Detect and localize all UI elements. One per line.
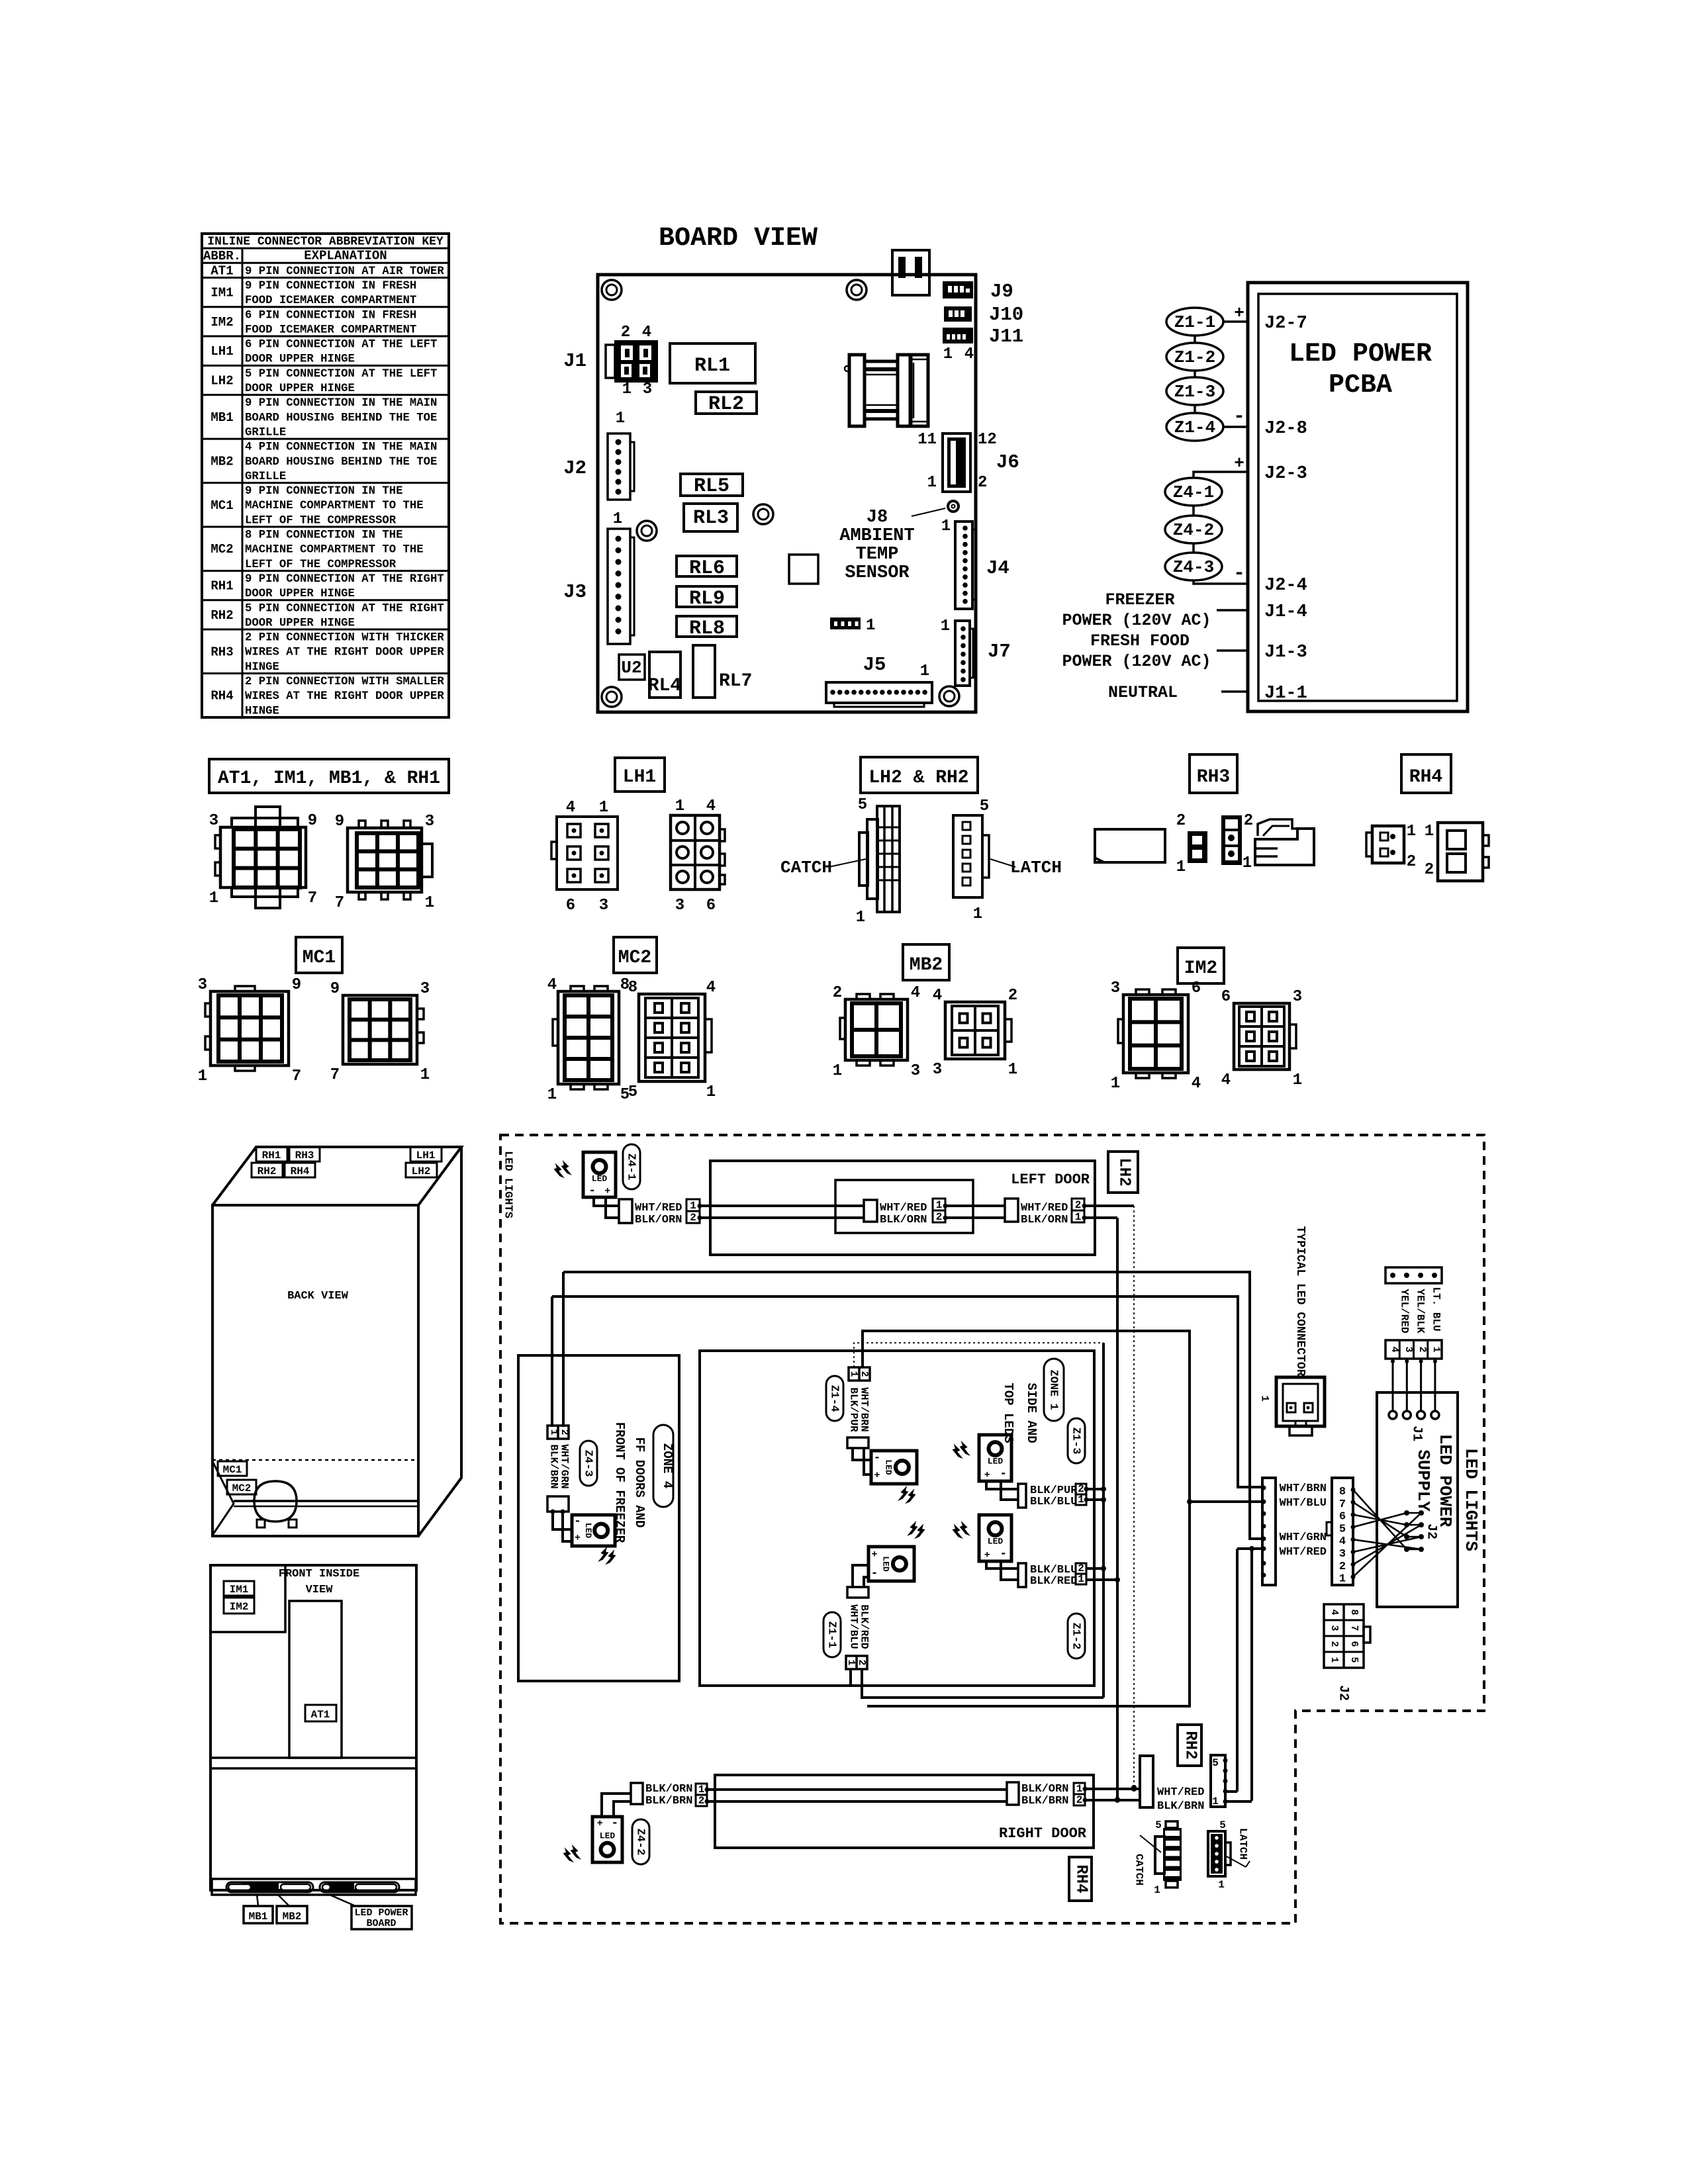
svg-text:WHT/GRN: WHT/GRN xyxy=(1280,1531,1327,1544)
svg-text:Z4-1: Z4-1 xyxy=(1173,482,1214,502)
svg-text:2: 2 xyxy=(859,1371,870,1377)
svg-text:RH2: RH2 xyxy=(211,608,233,623)
svg-text:BLK/RED: BLK/RED xyxy=(859,1604,870,1649)
svg-text:LH1: LH1 xyxy=(623,767,656,788)
svg-text:3: 3 xyxy=(1339,1548,1346,1561)
svg-text:ZONE 1: ZONE 1 xyxy=(1047,1369,1059,1410)
svg-text:RH3: RH3 xyxy=(295,1150,314,1161)
svg-text:-: - xyxy=(874,1451,881,1465)
svg-text:6: 6 xyxy=(1221,988,1231,1006)
svg-text:2: 2 xyxy=(833,984,842,1002)
svg-text:WHT/BRN: WHT/BRN xyxy=(1280,1482,1327,1495)
svg-text:1: 1 xyxy=(1293,1071,1302,1089)
svg-text:+: + xyxy=(871,1549,877,1561)
svg-text:BOARD HOUSING BEHIND THE TOE: BOARD HOUSING BEHIND THE TOE xyxy=(245,456,437,469)
svg-text:Z1-2: Z1-2 xyxy=(1174,347,1215,367)
svg-text:2: 2 xyxy=(1417,1346,1428,1352)
svg-text:J3: J3 xyxy=(563,581,586,603)
svg-text:9 PIN CONNECTION IN FRESH: 9 PIN CONNECTION IN FRESH xyxy=(245,280,416,293)
svg-text:5 PIN CONNECTION AT THE RIGHT: 5 PIN CONNECTION AT THE RIGHT xyxy=(245,602,444,615)
svg-text:1: 1 xyxy=(1339,1573,1346,1586)
svg-text:1: 1 xyxy=(1218,1879,1225,1891)
svg-text:Z1-3: Z1-3 xyxy=(1174,382,1215,402)
svg-text:Z4-1: Z4-1 xyxy=(624,1154,637,1181)
svg-text:2 PIN CONNECTION WITH SMALLER: 2 PIN CONNECTION WITH SMALLER xyxy=(245,676,444,688)
svg-text:RH2: RH2 xyxy=(1182,1731,1199,1759)
svg-text:IM2: IM2 xyxy=(1184,958,1217,979)
svg-text:3: 3 xyxy=(1111,979,1120,997)
svg-text:RL6: RL6 xyxy=(689,557,725,580)
svg-text:9: 9 xyxy=(308,812,317,830)
svg-text:2: 2 xyxy=(690,1212,696,1224)
svg-text:AMBIENT: AMBIENT xyxy=(839,526,914,546)
svg-text:J1: J1 xyxy=(563,350,586,372)
svg-text:2 PIN CONNECTION WITH THICKER: 2 PIN CONNECTION WITH THICKER xyxy=(245,632,444,645)
svg-text:DOOR UPPER HINGE: DOOR UPPER HINGE xyxy=(245,353,355,366)
svg-text:CATCH: CATCH xyxy=(780,858,832,878)
svg-text:BLK/ORN: BLK/ORN xyxy=(1021,1214,1068,1226)
svg-text:3: 3 xyxy=(198,976,207,994)
svg-text:BLK/ORN: BLK/ORN xyxy=(635,1214,682,1226)
svg-text:+: + xyxy=(984,1549,990,1561)
svg-text:9 PIN CONNECTION IN THE MAIN: 9 PIN CONNECTION IN THE MAIN xyxy=(245,397,437,410)
svg-text:RL5: RL5 xyxy=(694,475,729,498)
svg-text:7: 7 xyxy=(292,1068,301,1085)
svg-text:INLINE CONNECTOR ABBREVIATION: INLINE CONNECTOR ABBREVIATION KEY xyxy=(207,236,444,249)
svg-text:FREEZER: FREEZER xyxy=(1105,590,1174,610)
svg-text:4: 4 xyxy=(1329,1609,1340,1615)
svg-text:WHT/GRN: WHT/GRN xyxy=(559,1444,571,1488)
svg-text:4: 4 xyxy=(1389,1346,1400,1352)
svg-text:+: + xyxy=(604,1186,610,1197)
svg-text:LED POWER: LED POWER xyxy=(354,1907,408,1919)
svg-text:+: + xyxy=(1234,303,1244,323)
svg-text:-: - xyxy=(1000,1467,1007,1480)
svg-text:11: 11 xyxy=(917,431,937,449)
svg-text:1: 1 xyxy=(1212,1796,1219,1807)
svg-text:1: 1 xyxy=(856,909,865,927)
svg-text:7: 7 xyxy=(1339,1498,1346,1511)
svg-text:LH1: LH1 xyxy=(211,344,233,359)
svg-text:MB1: MB1 xyxy=(249,1911,268,1923)
svg-text:1: 1 xyxy=(616,410,625,428)
svg-text:5: 5 xyxy=(1155,1819,1162,1831)
svg-text:7: 7 xyxy=(308,889,317,907)
svg-text:5: 5 xyxy=(1212,1757,1219,1769)
svg-text:9: 9 xyxy=(335,813,344,831)
svg-text:RH3: RH3 xyxy=(211,645,233,659)
svg-text:RL8: RL8 xyxy=(689,617,725,640)
svg-text:DOOR UPPER HINGE: DOOR UPPER HINGE xyxy=(245,588,355,600)
svg-text:1: 1 xyxy=(706,1083,716,1101)
svg-text:1: 1 xyxy=(209,889,218,907)
svg-text:1: 1 xyxy=(1076,1783,1083,1795)
svg-text:6: 6 xyxy=(1348,1641,1360,1647)
svg-text:DOOR UPPER HINGE: DOOR UPPER HINGE xyxy=(245,383,355,395)
svg-text:LT. BLU: LT. BLU xyxy=(1430,1287,1442,1331)
svg-text:1: 1 xyxy=(1111,1075,1120,1093)
svg-text:MB2: MB2 xyxy=(211,454,233,469)
svg-text:4: 4 xyxy=(911,984,920,1002)
svg-text:Z1-1: Z1-1 xyxy=(825,1621,837,1649)
svg-text:RL1: RL1 xyxy=(694,355,730,377)
svg-text:J2-7: J2-7 xyxy=(1264,314,1307,334)
svg-text:3: 3 xyxy=(599,897,608,915)
svg-text:3: 3 xyxy=(933,1061,942,1079)
svg-text:WHT/RED: WHT/RED xyxy=(1280,1546,1327,1559)
svg-text:Z1-3: Z1-3 xyxy=(1069,1428,1082,1455)
svg-text:CATCH: CATCH xyxy=(1133,1854,1145,1886)
svg-text:9 PIN CONNECTION AT AIR TOWER: 9 PIN CONNECTION AT AIR TOWER xyxy=(245,265,444,278)
svg-text:LED: LED xyxy=(988,1456,1004,1466)
svg-text:POWER (120V AC): POWER (120V AC) xyxy=(1062,652,1211,671)
svg-text:1: 1 xyxy=(1329,1657,1340,1662)
svg-text:LED: LED xyxy=(592,1174,608,1184)
svg-text:2: 2 xyxy=(978,474,987,492)
svg-text:BLK/BRN: BLK/BRN xyxy=(1157,1800,1204,1813)
svg-text:LED: LED xyxy=(600,1831,616,1841)
svg-text:-: - xyxy=(1233,563,1245,585)
svg-text:Z4-3: Z4-3 xyxy=(581,1450,594,1477)
svg-text:J11: J11 xyxy=(989,326,1023,347)
svg-text:FRONT INSIDE: FRONT INSIDE xyxy=(279,1568,359,1580)
svg-text:MC1: MC1 xyxy=(211,498,233,513)
svg-text:9 PIN CONNECTION IN THE: 9 PIN CONNECTION IN THE xyxy=(245,485,403,498)
svg-text:2: 2 xyxy=(1244,812,1253,830)
svg-text:POWER (120V AC): POWER (120V AC) xyxy=(1062,611,1211,630)
svg-text:3: 3 xyxy=(675,897,684,915)
svg-text:1: 1 xyxy=(866,617,875,635)
svg-text:TEMP: TEMP xyxy=(856,545,899,565)
svg-text:LED: LED xyxy=(988,1536,1004,1546)
svg-text:LH2: LH2 xyxy=(211,374,233,388)
svg-text:7: 7 xyxy=(330,1066,340,1084)
svg-text:-: - xyxy=(1233,406,1245,428)
svg-text:7: 7 xyxy=(335,894,344,912)
svg-text:1: 1 xyxy=(698,1784,705,1796)
svg-text:4: 4 xyxy=(1192,1075,1201,1093)
svg-text:1: 1 xyxy=(943,345,953,363)
svg-text:WIRES AT THE RIGHT DOOR UPPER: WIRES AT THE RIGHT DOOR UPPER xyxy=(245,647,444,659)
svg-text:Z1-4: Z1-4 xyxy=(1174,418,1215,437)
svg-text:4 PIN CONNECTION IN THE MAIN: 4 PIN CONNECTION IN THE MAIN xyxy=(245,441,437,454)
svg-text:3: 3 xyxy=(425,813,434,831)
svg-text:Z4-2: Z4-2 xyxy=(1173,520,1214,540)
svg-text:MACHINE COMPARTMENT TO THE: MACHINE COMPARTMENT TO THE xyxy=(245,500,424,512)
svg-text:RH3: RH3 xyxy=(1197,767,1230,788)
svg-text:LED POWER: LED POWER xyxy=(1289,340,1432,369)
svg-text:BLK/ORN: BLK/ORN xyxy=(645,1783,692,1796)
svg-text:RIGHT DOOR: RIGHT DOOR xyxy=(999,1825,1087,1842)
svg-text:1: 1 xyxy=(1176,858,1186,876)
svg-text:+: + xyxy=(984,1469,990,1480)
svg-text:LH1: LH1 xyxy=(416,1150,436,1161)
svg-text:IM1: IM1 xyxy=(211,286,233,300)
svg-text:PCBA: PCBA xyxy=(1329,371,1392,400)
svg-text:J1-1: J1-1 xyxy=(1264,684,1307,704)
svg-text:IM2: IM2 xyxy=(211,315,233,330)
svg-text:2: 2 xyxy=(1425,861,1434,879)
svg-text:4: 4 xyxy=(706,797,716,815)
svg-text:MC2: MC2 xyxy=(232,1482,252,1494)
svg-text:LH2: LH2 xyxy=(1115,1158,1133,1186)
svg-text:+: + xyxy=(575,1533,581,1544)
svg-text:EXPLANATION: EXPLANATION xyxy=(304,249,387,263)
svg-text:BLK/BRN: BLK/BRN xyxy=(645,1795,692,1807)
svg-text:WHT/BLU: WHT/BLU xyxy=(848,1604,860,1649)
svg-text:ABBR.: ABBR. xyxy=(203,249,241,263)
svg-text:5: 5 xyxy=(1219,1819,1226,1831)
svg-text:5: 5 xyxy=(858,796,867,814)
svg-text:RL3: RL3 xyxy=(693,507,729,529)
svg-text:WHT/RED: WHT/RED xyxy=(880,1202,927,1214)
svg-text:3: 3 xyxy=(911,1062,920,1080)
svg-text:2: 2 xyxy=(1407,853,1416,871)
svg-text:FRESH FOOD: FRESH FOOD xyxy=(1090,631,1190,651)
svg-text:2: 2 xyxy=(621,324,630,341)
svg-text:MB2: MB2 xyxy=(283,1911,302,1923)
svg-text:1: 1 xyxy=(1407,823,1416,841)
svg-text:J4: J4 xyxy=(986,557,1009,579)
svg-text:4: 4 xyxy=(933,987,942,1005)
svg-text:1: 1 xyxy=(622,381,632,398)
svg-text:1: 1 xyxy=(1008,1061,1017,1079)
svg-text:5: 5 xyxy=(1339,1523,1346,1535)
svg-text:ZONE 4: ZONE 4 xyxy=(660,1443,675,1488)
svg-text:U2: U2 xyxy=(621,658,641,678)
svg-text:BOARD HOUSING BEHIND THE TOE: BOARD HOUSING BEHIND THE TOE xyxy=(245,412,437,424)
svg-text:1: 1 xyxy=(690,1200,696,1212)
svg-text:DOOR UPPER HINGE: DOOR UPPER HINGE xyxy=(245,617,355,629)
svg-text:LEFT OF THE COMPRESSOR: LEFT OF THE COMPRESSOR xyxy=(245,559,397,571)
svg-text:2: 2 xyxy=(1008,987,1017,1005)
svg-text:1: 1 xyxy=(198,1068,207,1085)
svg-text:WHT/RED: WHT/RED xyxy=(635,1202,682,1214)
svg-text:8: 8 xyxy=(1348,1609,1360,1615)
svg-text:-: - xyxy=(871,1567,878,1580)
svg-text:+: + xyxy=(597,1818,603,1829)
svg-text:4: 4 xyxy=(964,345,974,363)
svg-text:RL2: RL2 xyxy=(708,393,744,416)
svg-text:FF DOORS AND: FF DOORS AND xyxy=(632,1437,647,1528)
svg-text:1: 1 xyxy=(675,797,684,815)
svg-text:4: 4 xyxy=(706,979,716,997)
svg-text:4: 4 xyxy=(1339,1535,1346,1548)
svg-text:Z1-4: Z1-4 xyxy=(827,1385,840,1412)
svg-text:1: 1 xyxy=(1078,1573,1084,1585)
svg-text:RH4: RH4 xyxy=(1409,767,1442,788)
svg-text:1: 1 xyxy=(848,1371,859,1377)
svg-text:1: 1 xyxy=(1078,1494,1084,1506)
svg-text:LH2: LH2 xyxy=(412,1165,431,1177)
svg-text:J6: J6 xyxy=(996,451,1019,473)
svg-text:1: 1 xyxy=(1243,854,1252,872)
svg-text:6: 6 xyxy=(566,897,575,915)
svg-text:-: - xyxy=(611,1817,618,1830)
svg-text:9 PIN CONNECTION AT THE RIGHT: 9 PIN CONNECTION AT THE RIGHT xyxy=(245,573,444,586)
svg-text:Z1-1: Z1-1 xyxy=(1174,312,1215,332)
svg-text:FOOD ICEMAKER COMPARTMENT: FOOD ICEMAKER COMPARTMENT xyxy=(245,324,416,336)
svg-text:J9: J9 xyxy=(990,281,1013,302)
svg-text:WHT/BLU: WHT/BLU xyxy=(1280,1497,1327,1510)
svg-text:5: 5 xyxy=(628,1083,637,1101)
svg-text:J5: J5 xyxy=(863,654,886,676)
svg-text:LED POWER: LED POWER xyxy=(1435,1434,1455,1527)
svg-text:J2-4: J2-4 xyxy=(1264,576,1307,596)
svg-text:1: 1 xyxy=(927,474,937,492)
svg-text:Z4-2: Z4-2 xyxy=(633,1829,646,1856)
svg-text:TYPICAL LED CONNECTOR: TYPICAL LED CONNECTOR xyxy=(1293,1226,1307,1377)
svg-text:BLK/PUR: BLK/PUR xyxy=(848,1387,860,1432)
svg-text:GRILLE: GRILLE xyxy=(245,471,286,483)
svg-text:MB2: MB2 xyxy=(910,955,943,976)
svg-text:4: 4 xyxy=(566,799,575,817)
svg-text:LED: LED xyxy=(881,1556,891,1572)
svg-text:1: 1 xyxy=(936,1199,943,1211)
svg-text:2: 2 xyxy=(856,1659,867,1665)
svg-text:Z1-2: Z1-2 xyxy=(1069,1623,1082,1650)
svg-text:LH2 & RH2: LH2 & RH2 xyxy=(868,768,968,788)
svg-text:HINGE: HINGE xyxy=(245,705,279,717)
svg-text:6: 6 xyxy=(1339,1511,1346,1524)
svg-text:1: 1 xyxy=(833,1062,842,1080)
svg-text:SIDE AND: SIDE AND xyxy=(1024,1383,1039,1443)
svg-text:3: 3 xyxy=(1403,1346,1414,1352)
svg-text:1: 1 xyxy=(1075,1211,1082,1223)
svg-text:BOARD: BOARD xyxy=(366,1918,396,1929)
svg-text:9: 9 xyxy=(330,980,340,998)
svg-text:SENSOR: SENSOR xyxy=(845,563,910,583)
svg-text:3: 3 xyxy=(1293,988,1302,1006)
svg-text:LED LIGHTS: LED LIGHTS xyxy=(501,1151,514,1218)
svg-text:J1: J1 xyxy=(1409,1426,1425,1441)
svg-text:J2: J2 xyxy=(1336,1685,1351,1701)
svg-text:BLK/BLU: BLK/BLU xyxy=(1030,1496,1077,1508)
svg-text:5: 5 xyxy=(980,797,989,815)
svg-text:1: 1 xyxy=(1425,823,1434,841)
svg-text:2: 2 xyxy=(1176,812,1186,830)
svg-text:MACHINE COMPARTMENT TO THE: MACHINE COMPARTMENT TO THE xyxy=(245,544,424,557)
svg-text:LEFT OF THE COMPRESSOR: LEFT OF THE COMPRESSOR xyxy=(245,514,397,527)
svg-text:-: - xyxy=(574,1515,581,1528)
svg-text:7: 7 xyxy=(1348,1625,1360,1631)
svg-text:IM2: IM2 xyxy=(230,1601,249,1613)
svg-text:AT1: AT1 xyxy=(211,263,233,278)
svg-text:LED: LED xyxy=(583,1523,593,1539)
svg-text:J10: J10 xyxy=(989,304,1023,326)
svg-text:+: + xyxy=(1234,453,1244,473)
svg-text:BLK/BRN: BLK/BRN xyxy=(548,1444,560,1488)
svg-text:LEFT DOOR: LEFT DOOR xyxy=(1011,1171,1090,1188)
svg-text:2: 2 xyxy=(559,1429,570,1435)
svg-text:J1-3: J1-3 xyxy=(1264,643,1307,662)
svg-text:MB1: MB1 xyxy=(211,410,233,425)
svg-text:YEL/RED: YEL/RED xyxy=(1399,1289,1411,1333)
svg-text:J2: J2 xyxy=(1424,1524,1439,1539)
svg-text:1: 1 xyxy=(941,518,951,535)
svg-text:RL7: RL7 xyxy=(719,671,752,692)
svg-text:J7: J7 xyxy=(988,641,1011,662)
svg-text:2: 2 xyxy=(1075,1199,1082,1211)
svg-text:MC1: MC1 xyxy=(303,948,336,968)
svg-text:BACK VIEW: BACK VIEW xyxy=(287,1290,349,1302)
svg-text:1: 1 xyxy=(599,799,608,817)
svg-text:8: 8 xyxy=(628,979,637,997)
svg-text:BLK/ORN: BLK/ORN xyxy=(1021,1783,1068,1796)
svg-text:5 PIN CONNECTION AT THE LEFT: 5 PIN CONNECTION AT THE LEFT xyxy=(245,368,437,381)
svg-text:MC1: MC1 xyxy=(223,1464,242,1476)
svg-text:1: 1 xyxy=(548,1429,559,1435)
svg-text:1: 1 xyxy=(845,1659,857,1665)
svg-text:2: 2 xyxy=(936,1211,943,1223)
svg-text:RL9: RL9 xyxy=(689,588,725,610)
svg-text:1: 1 xyxy=(420,1066,430,1084)
svg-text:BLK/RED: BLK/RED xyxy=(1030,1575,1077,1588)
svg-text:J8: J8 xyxy=(867,508,888,527)
svg-text:6: 6 xyxy=(706,897,716,915)
svg-text:BLK/ORN: BLK/ORN xyxy=(880,1214,927,1226)
svg-text:1: 1 xyxy=(973,905,982,923)
svg-text:MC2: MC2 xyxy=(618,948,651,968)
svg-text:WHT/RED: WHT/RED xyxy=(1021,1202,1068,1214)
svg-text:LATCH: LATCH xyxy=(1237,1828,1249,1860)
svg-text:4: 4 xyxy=(1221,1071,1231,1089)
svg-text:9: 9 xyxy=(292,976,301,994)
svg-text:2: 2 xyxy=(698,1795,705,1807)
svg-text:RH1: RH1 xyxy=(211,579,233,594)
svg-text:RH2: RH2 xyxy=(258,1165,277,1177)
svg-text:8 PIN CONNECTION IN THE: 8 PIN CONNECTION IN THE xyxy=(245,529,403,542)
svg-text:AT1: AT1 xyxy=(311,1709,330,1721)
svg-text:Z4-3: Z4-3 xyxy=(1173,557,1214,577)
svg-text:MC2: MC2 xyxy=(211,542,233,557)
svg-text:+: + xyxy=(874,1470,880,1481)
svg-text:-: - xyxy=(1000,1547,1007,1561)
svg-text:3: 3 xyxy=(1329,1625,1340,1631)
svg-text:-: - xyxy=(588,1185,596,1198)
svg-text:J2-8: J2-8 xyxy=(1264,419,1307,439)
svg-text:1: 1 xyxy=(613,510,622,528)
svg-text:1: 1 xyxy=(425,894,434,912)
svg-text:RH1: RH1 xyxy=(262,1150,281,1161)
svg-text:1: 1 xyxy=(1430,1346,1442,1352)
svg-text:NEUTRAL: NEUTRAL xyxy=(1108,683,1178,702)
svg-text:IM1: IM1 xyxy=(230,1584,249,1596)
svg-text:LED LIGHTS: LED LIGHTS xyxy=(1461,1448,1481,1551)
svg-text:WHT/BRN: WHT/BRN xyxy=(859,1387,870,1432)
svg-text:J1-4: J1-4 xyxy=(1264,602,1307,622)
svg-text:2: 2 xyxy=(1339,1561,1346,1573)
svg-text:J2: J2 xyxy=(563,457,586,479)
svg-text:GRILLE: GRILLE xyxy=(245,426,286,439)
svg-text:RH4: RH4 xyxy=(1072,1864,1090,1893)
svg-text:VIEW: VIEW xyxy=(306,1584,334,1596)
svg-text:4: 4 xyxy=(547,976,557,994)
svg-text:LATCH: LATCH xyxy=(1010,858,1062,878)
svg-text:2: 2 xyxy=(1329,1641,1340,1647)
svg-text:6: 6 xyxy=(1192,979,1201,997)
svg-text:8: 8 xyxy=(1339,1486,1346,1498)
svg-text:BOARD VIEW: BOARD VIEW xyxy=(659,224,818,253)
svg-text:J2-3: J2-3 xyxy=(1264,464,1307,484)
svg-text:WHT/RED: WHT/RED xyxy=(1157,1786,1204,1799)
svg-text:BLK/BRN: BLK/BRN xyxy=(1021,1795,1068,1807)
svg-text:RH4: RH4 xyxy=(291,1165,310,1177)
svg-text:3: 3 xyxy=(420,980,430,998)
svg-text:5: 5 xyxy=(1348,1657,1360,1662)
svg-text:2: 2 xyxy=(1076,1794,1083,1806)
svg-text:FOOD ICEMAKER COMPARTMENT: FOOD ICEMAKER COMPARTMENT xyxy=(245,295,416,307)
